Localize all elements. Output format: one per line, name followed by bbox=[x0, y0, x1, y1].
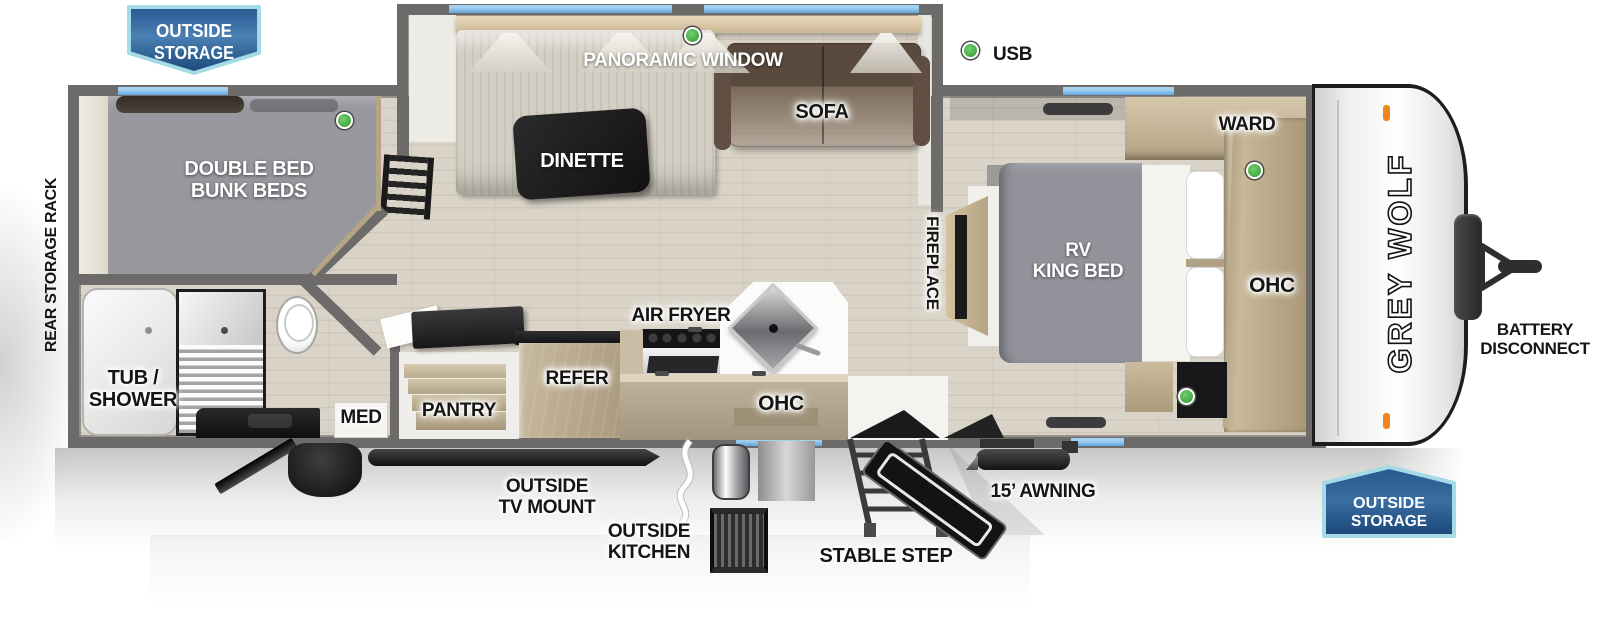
svg-text:STORAGE: STORAGE bbox=[1351, 513, 1427, 530]
svg-text:STORAGE: STORAGE bbox=[154, 43, 234, 63]
svg-text:OUTSIDE: OUTSIDE bbox=[1353, 495, 1425, 512]
svg-text:OUTSIDE: OUTSIDE bbox=[156, 21, 232, 41]
